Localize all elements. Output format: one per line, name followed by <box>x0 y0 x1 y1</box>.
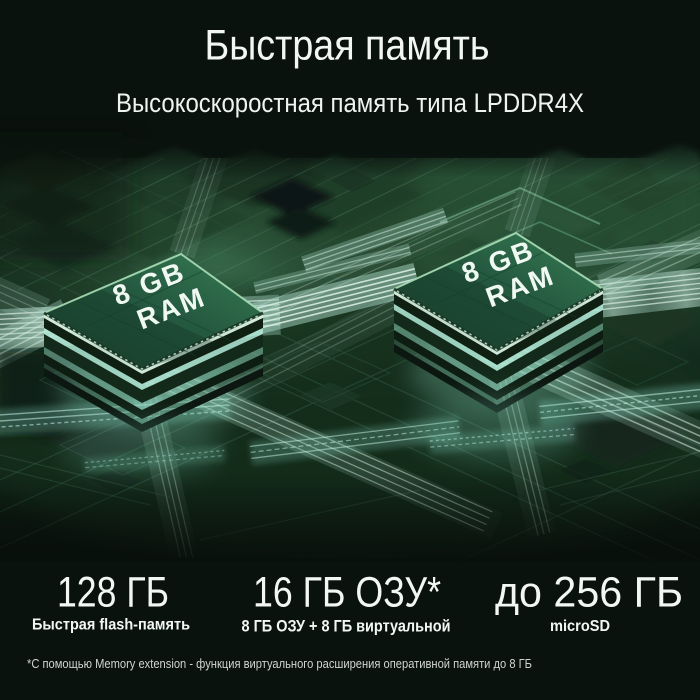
svg-text:16 ГБ ОЗУ*: 16 ГБ ОЗУ* <box>253 569 441 617</box>
svg-text:microSD: microSD <box>550 618 610 635</box>
svg-text:Быстрая память: Быстрая память <box>205 22 490 70</box>
svg-text:128 ГБ: 128 ГБ <box>57 569 169 617</box>
svg-text:Быстрая flash-память: Быстрая flash-память <box>32 617 190 634</box>
svg-text:до 256 ГБ: до 256 ГБ <box>495 569 683 617</box>
svg-text:Высокоскоростная память типа L: Высокоскоростная память типа LPDDR4X <box>116 88 584 118</box>
svg-text:8 ГБ ОЗУ + 8 ГБ виртуальной: 8 ГБ ОЗУ + 8 ГБ виртуальной <box>242 618 451 636</box>
svg-text:*С помощью Memory extension -: *С помощью Memory extension - функция ви… <box>27 656 532 671</box>
